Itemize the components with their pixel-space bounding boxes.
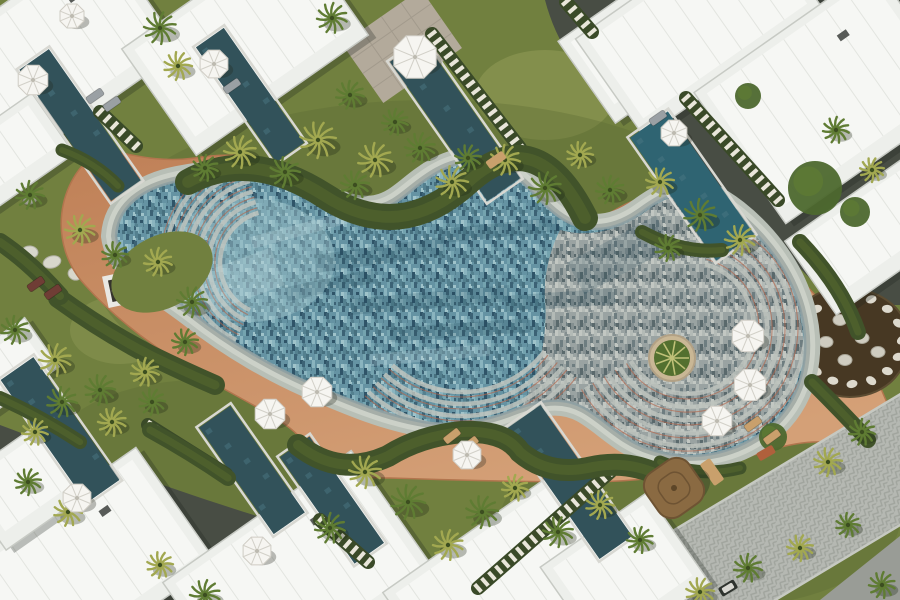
pool-island-planter [649, 335, 695, 381]
stepping-stone [819, 337, 833, 348]
stepping-stone [871, 347, 885, 358]
aerial-scene [0, 0, 900, 600]
resort-aerial-photo [0, 0, 900, 600]
stepping-stone [838, 355, 852, 366]
